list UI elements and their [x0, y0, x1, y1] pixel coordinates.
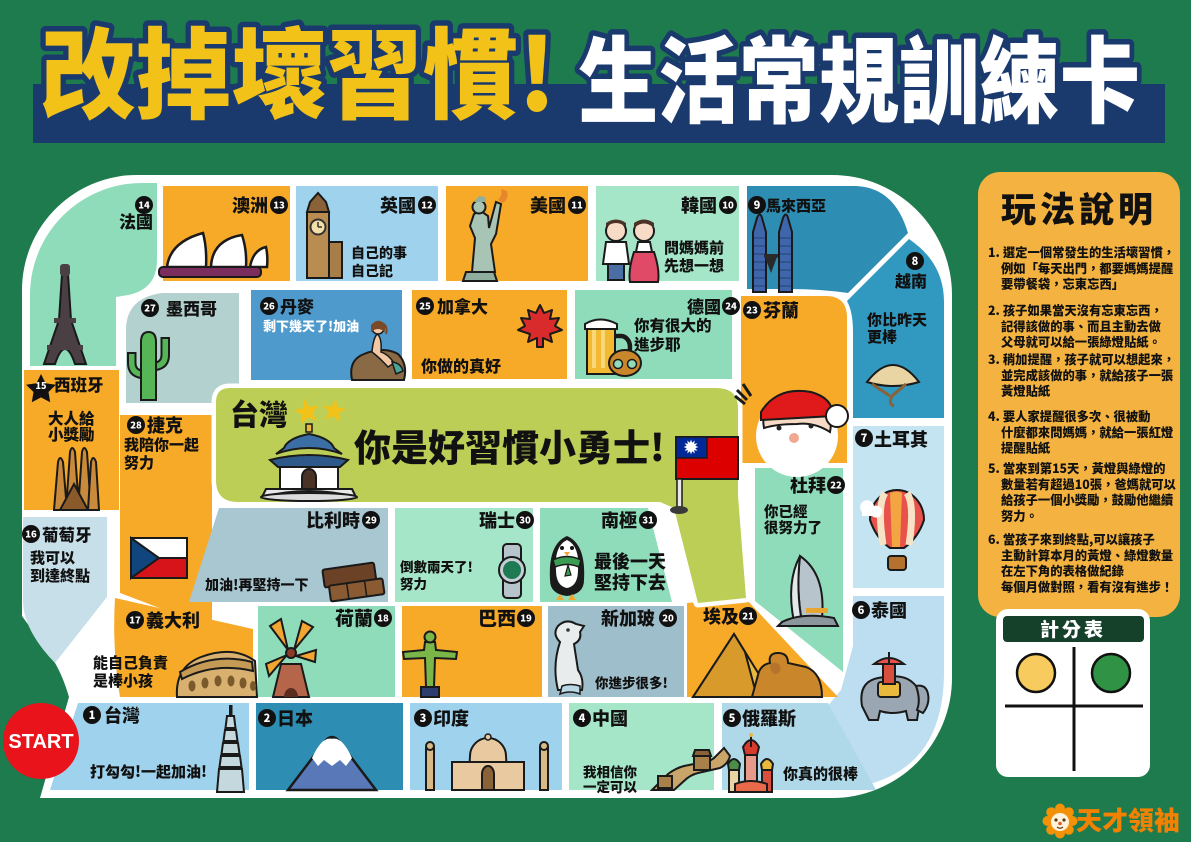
svg-text:生活常規訓練卡: 生活常規訓練卡 [578, 7, 1140, 143]
svg-text:土耳其: 土耳其 [874, 426, 928, 452]
svg-text:22: 22 [830, 477, 842, 491]
svg-text:26: 26 [263, 298, 275, 312]
svg-text:你做的真好: 你做的真好 [421, 353, 501, 377]
svg-text:1: 1 [89, 707, 96, 723]
svg-text:你真的很棒: 你真的很棒 [783, 763, 858, 784]
svg-text:23: 23 [746, 302, 758, 316]
svg-text:台灣: 台灣 [230, 392, 288, 434]
svg-text:瑞士: 瑞士 [479, 507, 515, 533]
svg-text:14: 14 [138, 197, 150, 211]
svg-text:11: 11 [571, 197, 583, 211]
svg-text:6: 6 [858, 602, 865, 618]
svg-text:加拿大: 加拿大 [437, 293, 488, 318]
svg-text:南極: 南極 [601, 507, 637, 533]
svg-text:16: 16 [25, 526, 37, 540]
svg-text:最後一天堅持下去: 最後一天堅持下去 [594, 548, 666, 595]
svg-text:19: 19 [520, 610, 532, 624]
svg-text:中國: 中國 [592, 705, 628, 731]
svg-text:7: 7 [861, 430, 868, 446]
svg-text:4: 4 [579, 710, 586, 726]
svg-text:玩法說明: 玩法說明 [1001, 182, 1157, 233]
svg-text:29: 29 [365, 512, 377, 526]
svg-text:葡萄牙: 葡萄牙 [42, 522, 92, 546]
svg-text:3: 3 [420, 710, 427, 726]
svg-text:新加玻: 新加玻 [601, 605, 655, 631]
svg-text:荷蘭: 荷蘭 [335, 604, 373, 631]
svg-text:18: 18 [377, 610, 389, 624]
svg-text:21: 21 [742, 608, 754, 622]
svg-text:改掉壞習慣!: 改掉壞習慣! [40, 0, 556, 140]
svg-text:問媽媽前先想一想: 問媽媽前先想一想 [664, 237, 724, 276]
svg-text:你進步很多!: 你進步很多! [595, 672, 668, 692]
svg-text:13: 13 [273, 197, 285, 211]
svg-text:韓國: 韓國 [681, 192, 717, 218]
svg-text:剩下幾天了!加油: 剩下幾天了!加油 [263, 316, 359, 335]
svg-text:31: 31 [642, 512, 654, 526]
svg-text:墨西哥: 墨西哥 [166, 295, 217, 320]
svg-text:5: 5 [729, 710, 736, 726]
svg-text:2. 孩子如果當天沒有忘東忘西，記得該做的事、而且主動去做父: 2. 孩子如果當天沒有忘東忘西，記得該做的事、而且主動去做父母就可以給一張綠燈貼… [988, 301, 1163, 351]
svg-text:比利時: 比利時 [306, 507, 360, 533]
svg-text:日本: 日本 [277, 705, 313, 731]
svg-text:計分表: 計分表 [1040, 615, 1106, 642]
svg-text:芬蘭: 芬蘭 [763, 297, 799, 323]
svg-text:9: 9 [754, 197, 761, 213]
svg-text:17: 17 [129, 612, 141, 626]
svg-text:越南: 越南 [895, 268, 927, 292]
svg-text:10: 10 [722, 197, 734, 211]
svg-text:巴西: 巴西 [478, 604, 516, 631]
svg-text:你是好習慣小勇士!: 你是好習慣小勇士! [354, 418, 665, 472]
svg-text:泰國: 泰國 [871, 597, 907, 623]
svg-text:30: 30 [519, 512, 531, 526]
svg-text:12: 12 [421, 197, 433, 211]
svg-text:加油!再堅持一下: 加油!再堅持一下 [205, 575, 309, 595]
svg-text:25: 25 [419, 298, 431, 312]
svg-text:義大利: 義大利 [146, 607, 200, 633]
svg-text:24: 24 [725, 298, 737, 312]
svg-text:印度: 印度 [433, 705, 469, 731]
svg-text:澳洲: 澳洲 [232, 192, 268, 218]
svg-text:6. 當孩子來到終點,可以讓孩子主動計算本月的黃燈、綠燈數量: 6. 當孩子來到終點,可以讓孩子主動計算本月的黃燈、綠燈數量在左下角的表格做紀錄… [988, 530, 1173, 595]
svg-text:英國: 英國 [380, 192, 416, 218]
svg-text:西班牙: 西班牙 [54, 372, 104, 396]
svg-text:打勾勾!一起加油!: 打勾勾!一起加油! [90, 761, 207, 782]
svg-text:大人給小獎勵: 大人給小獎勵 [48, 407, 95, 445]
svg-text:美國: 美國 [530, 192, 566, 218]
svg-text:28: 28 [130, 417, 142, 431]
svg-text:丹麥: 丹麥 [280, 293, 314, 318]
svg-text:俄羅斯: 俄羅斯 [742, 705, 796, 731]
svg-text:15: 15 [36, 379, 47, 392]
svg-text:我相信你一定可以: 我相信你一定可以 [583, 761, 637, 796]
svg-text:START: START [8, 731, 73, 753]
svg-text:台灣: 台灣 [104, 702, 140, 728]
svg-text:埃及: 埃及 [703, 603, 739, 629]
svg-text:馬來西亞: 馬來西亞 [766, 195, 826, 216]
svg-text:27: 27 [144, 300, 156, 314]
svg-text:20: 20 [662, 610, 674, 624]
svg-text:8: 8 [912, 253, 919, 269]
svg-text:2: 2 [264, 710, 271, 726]
svg-text:天才領袖: 天才領袖 [1076, 801, 1180, 838]
